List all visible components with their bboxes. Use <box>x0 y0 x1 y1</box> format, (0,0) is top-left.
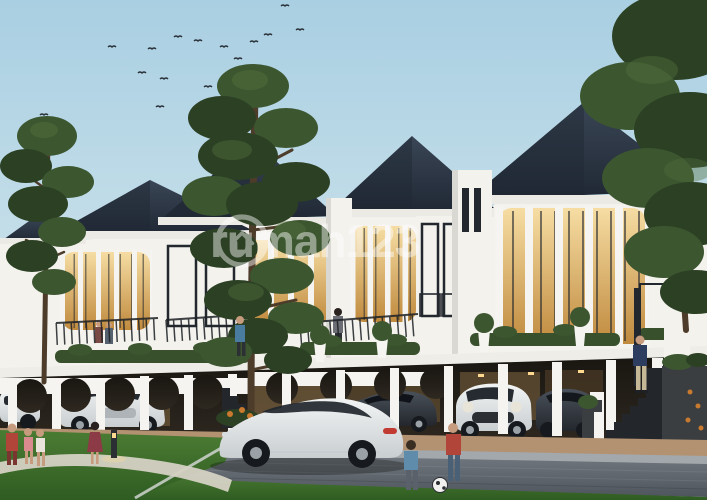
real-estate-render: rumah123 <box>0 0 707 500</box>
stone-planter-right <box>662 353 707 444</box>
soccer-ball <box>433 478 448 493</box>
scene-illustration <box>0 0 707 500</box>
car-white-mini <box>456 384 532 439</box>
